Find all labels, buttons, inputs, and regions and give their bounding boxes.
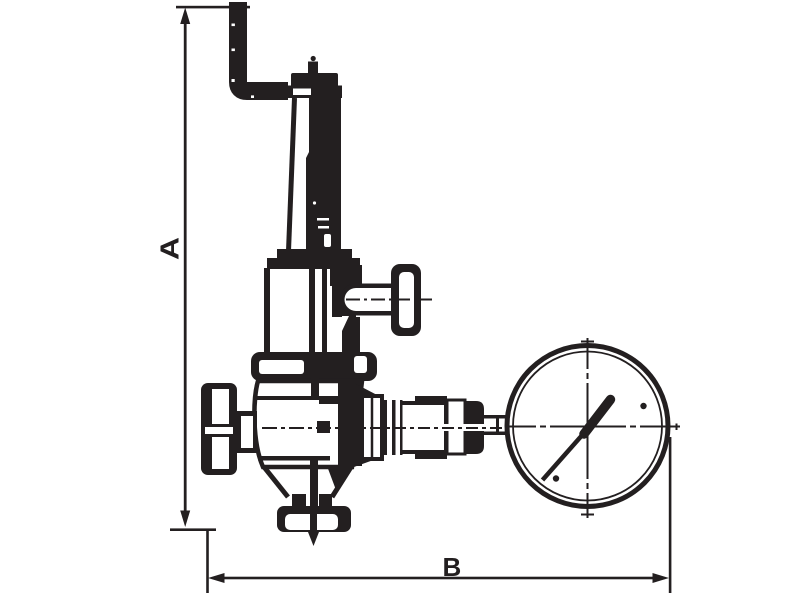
svg-text:B: B [443, 552, 462, 582]
svg-text:A: A [156, 237, 184, 260]
